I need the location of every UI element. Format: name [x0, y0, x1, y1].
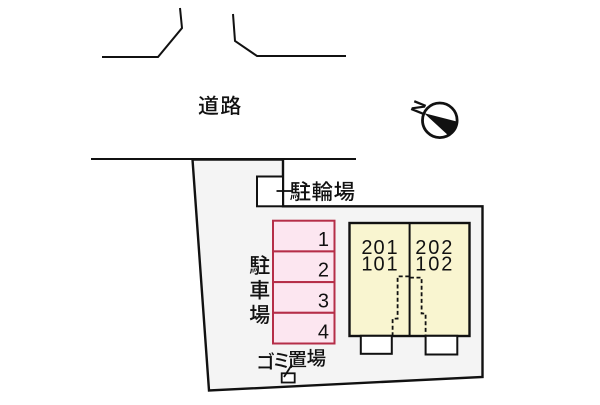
svg-text:2: 2 [318, 260, 329, 282]
svg-text:4: 4 [318, 322, 329, 344]
svg-text:3: 3 [318, 291, 329, 313]
svg-text:102: 102 [415, 253, 452, 275]
svg-text:1: 1 [318, 229, 329, 251]
svg-text:101: 101 [361, 253, 397, 275]
